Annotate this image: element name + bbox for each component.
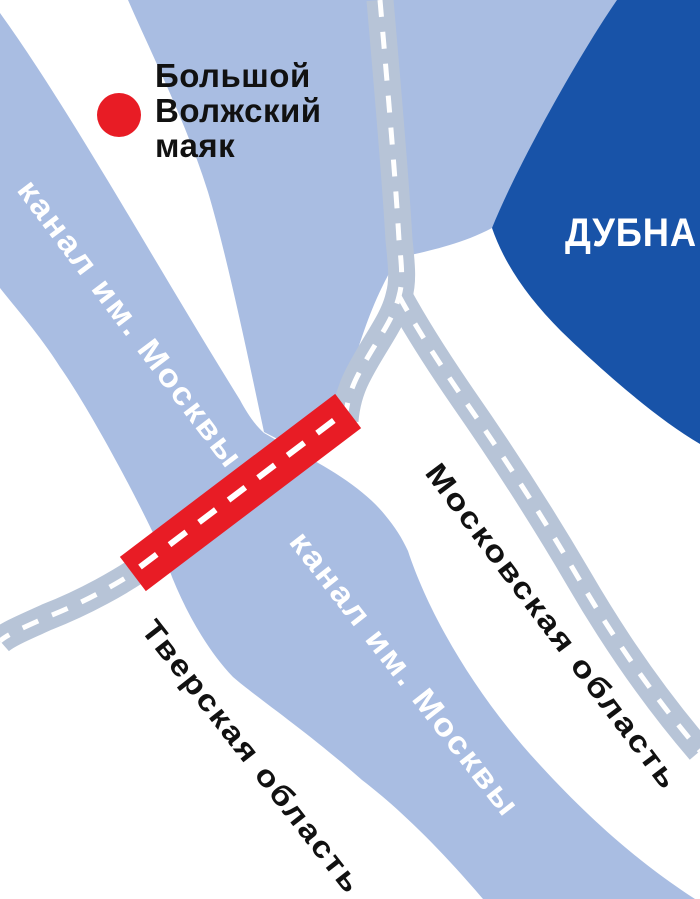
- lighthouse-marker-dot: [97, 93, 141, 137]
- lighthouse-label-line2: Волжский: [155, 92, 322, 129]
- city-label-dubna: ДУБНА: [565, 211, 697, 255]
- map-canvas: Большой Волжский маяк ДУБНА канал им. Мо…: [0, 0, 700, 899]
- lighthouse-label-line3: маяк: [155, 127, 235, 164]
- lighthouse-label-line1: Большой: [155, 57, 311, 94]
- dubna-canal-map: Большой Волжский маяк ДУБНА канал им. Мо…: [0, 0, 700, 899]
